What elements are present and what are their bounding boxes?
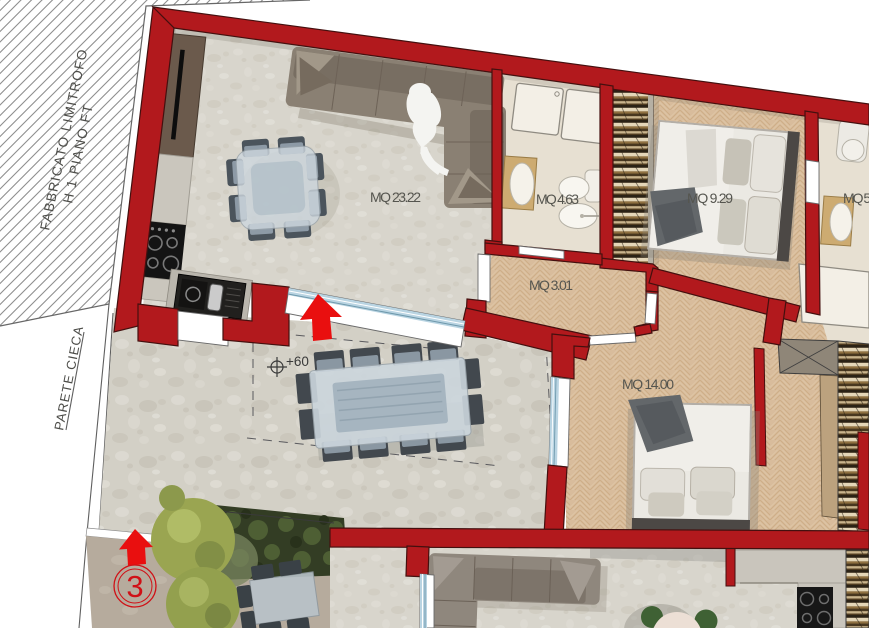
svg-text:MQ 23.22: MQ 23.22 [370,189,421,205]
svg-text:MQ 9.29: MQ 9.29 [687,190,733,206]
svg-text:MQ 5.: MQ 5. [843,190,869,206]
svg-text:MQ 3.01: MQ 3.01 [529,277,573,293]
svg-text:+60: +60 [286,354,309,369]
svg-text:MQ 14.00: MQ 14.00 [622,376,674,392]
svg-text:MQ 4.63: MQ 4.63 [536,191,579,207]
svg-text:3: 3 [126,569,143,604]
